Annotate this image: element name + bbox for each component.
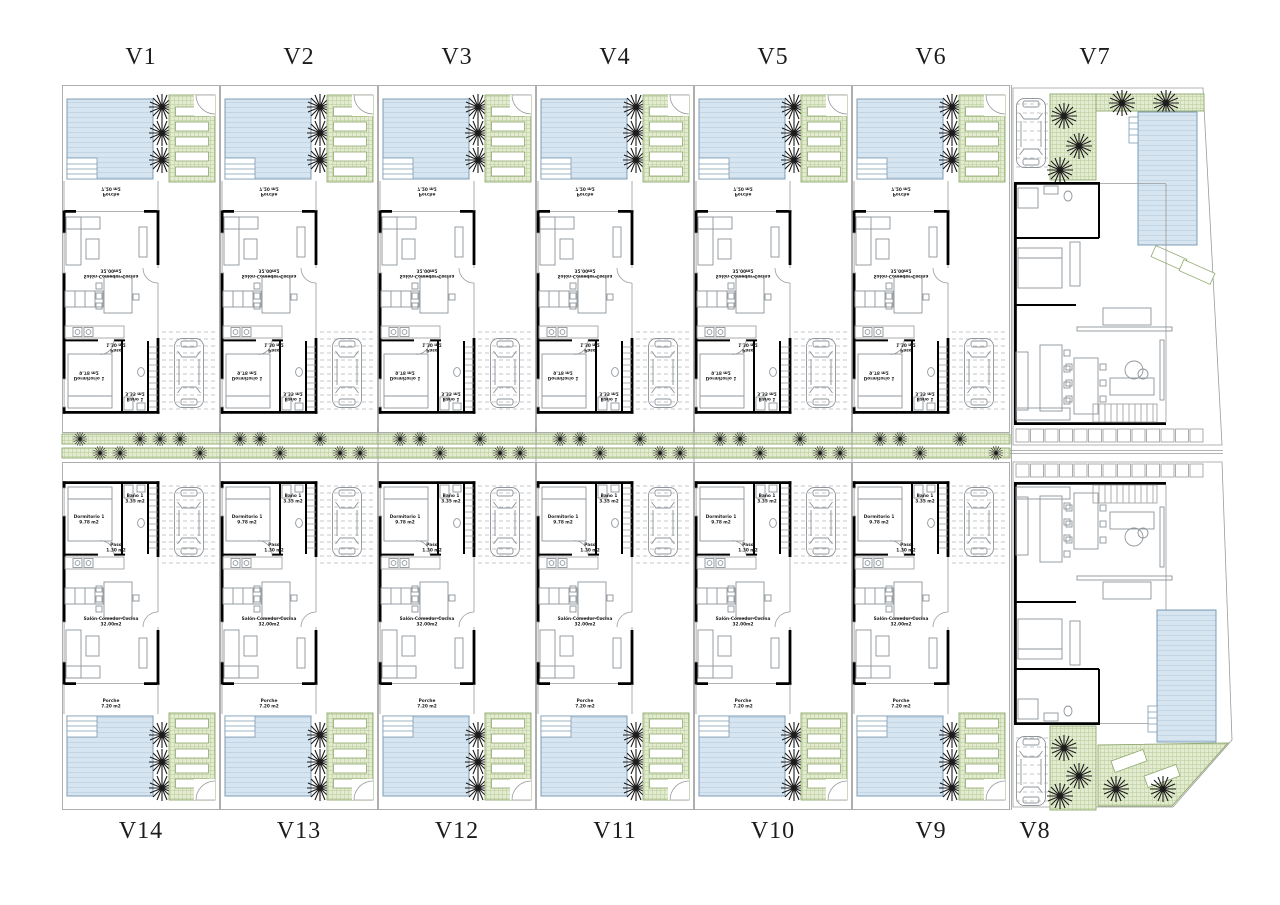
villa-v6	[852, 86, 1010, 433]
villa-v7-plan	[1013, 88, 1222, 445]
interior	[1014, 482, 1172, 725]
sun-lounger	[1179, 260, 1215, 285]
unit-label-v5: V5	[728, 44, 818, 71]
unit-label-v3: V3	[412, 44, 502, 71]
pool	[1157, 610, 1216, 742]
unit-label-v4: V4	[570, 44, 660, 71]
bottom-row-units	[62, 463, 1010, 810]
unit-label-v2: V2	[254, 44, 344, 71]
unit-label-v1: V1	[96, 44, 186, 71]
unit-label-v11: V11	[570, 818, 660, 845]
villa-v12	[378, 463, 536, 810]
lot-division-line	[1010, 451, 1223, 454]
site-plan-canvas: Dormitorio 1 9.78 m2 Baño 1 3.35 m2 Paso…	[0, 0, 1280, 905]
villa-v8-plan	[1013, 462, 1232, 810]
villa-v14	[62, 463, 220, 810]
villa-v3	[378, 86, 536, 433]
unit-label-v7: V7	[1050, 44, 1140, 71]
villa-v2	[220, 86, 378, 433]
villa-v11	[536, 463, 694, 810]
median-strip	[62, 428, 1010, 462]
pool-steps	[1129, 117, 1138, 143]
villa-v9	[852, 463, 1010, 810]
site-plan-drawing: Dormitorio 1 9.78 m2 Baño 1 3.35 m2 Paso…	[0, 0, 1280, 905]
pool	[1138, 112, 1197, 245]
unit-label-v13: V13	[254, 818, 344, 845]
unit-label-v14: V14	[96, 818, 186, 845]
unit-label-v10: V10	[728, 818, 818, 845]
villa-v10	[694, 463, 852, 810]
terrace-squares	[1016, 464, 1203, 477]
villa-v1	[62, 86, 220, 433]
villa-v4	[536, 86, 694, 433]
unit-label-v8: V8	[990, 818, 1080, 845]
unit-label-v12: V12	[412, 818, 502, 845]
pool-steps	[1148, 706, 1157, 732]
villa-v13	[220, 463, 378, 810]
terrace-squares	[1016, 429, 1203, 442]
unit-label-v6: V6	[886, 44, 976, 71]
unit-label-v9: V9	[886, 818, 976, 845]
top-row-units	[62, 86, 1010, 433]
villa-v5	[694, 86, 852, 433]
